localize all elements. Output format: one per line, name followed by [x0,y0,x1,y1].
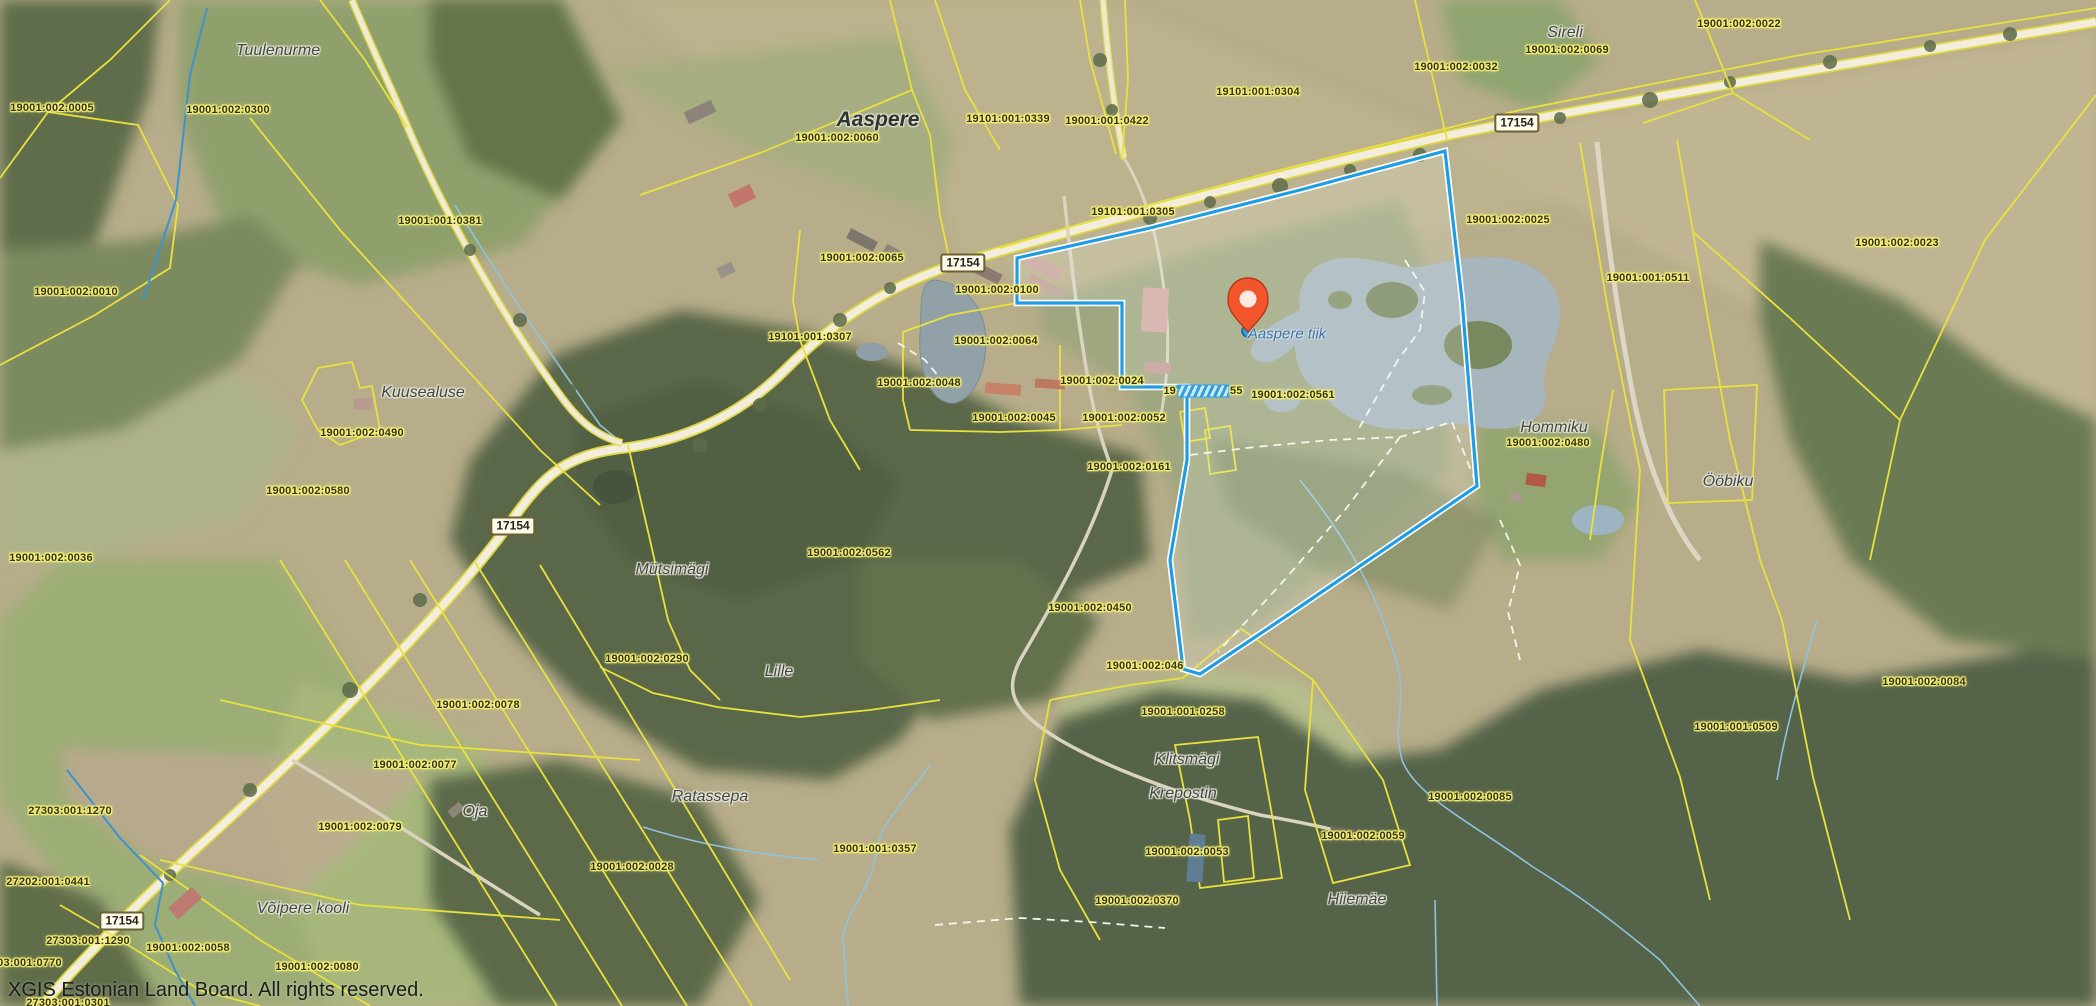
place-label: Ööbiku [1703,473,1754,491]
attribution-text: XGIS Estonian Land Board. All rights res… [8,979,424,1002]
parcel-label: 19001:002:0580 [266,485,350,497]
parcel-label: 19001:001:0509 [1694,721,1778,733]
place-label: Kuusealuse [381,384,465,402]
parcel-label: 19001:002:0045 [972,412,1056,424]
parcel-label: 19001:002:0480 [1506,437,1590,449]
parcel-label: 19001:002:0005 [10,102,94,114]
parcel-label: 19001:002:0561 [1251,389,1335,401]
parcel-label: 19001:002:0065 [820,252,904,264]
place-label: Lille [765,663,793,681]
parcel-label: 19001:002:0024 [1060,375,1144,387]
parcel-label: 19001:002:0052 [1082,412,1166,424]
parcel-label: 19001:002:0084 [1882,676,1966,688]
road-ref-badge: 17154 [99,912,144,931]
parcel-label: 19001:002:0370 [1095,895,1179,907]
place-label: Krepostin [1149,785,1217,803]
parcel-label: 19001:001:0422 [1065,115,1149,127]
place-label: Võipere kooli [257,900,350,918]
parcel-label: 27202:001:0441 [6,876,90,888]
map-canvas[interactable]: Tuulenurme19001:002:000519001:002:030019… [0,0,2096,1006]
parcel-label: 19101:001:0339 [966,113,1050,125]
place-label: Hiiemäe [1328,891,1387,909]
parcel-label: 19101:001:0304 [1216,86,1300,98]
place-label: Klitsmägi [1155,751,1220,769]
map-labels-layer: Tuulenurme19001:002:000519001:002:030019… [0,0,2096,1006]
parcel-label: 19001:002:0058 [146,942,230,954]
parcel-label: 19001:002:0079 [318,821,402,833]
place-label: Mütsimägi [636,561,709,579]
parcel-label: 19001:001:0357 [833,843,917,855]
parcel-label: 27303:001:0770 [0,957,62,969]
parcel-label: 19001:002:0161 [1087,461,1171,473]
parcel-label: 19001:002:0036 [9,552,93,564]
place-label: Oja [463,803,488,821]
parcel-label: 19001:002:0450 [1048,602,1132,614]
parcel-label: 27303:001:1290 [46,935,130,947]
parcel-label: 19001:002:0032 [1414,61,1498,73]
place-label: Hommiku [1520,419,1588,437]
parcel-label: 19001:001:0511 [1607,272,1690,284]
parcel-label: 19001:001:0381 [398,215,482,227]
parcel-label: 19001:001:0258 [1141,706,1225,718]
parcel-label: 19001:002:0078 [436,699,520,711]
parcel-label: 19001:002:0290 [605,653,689,665]
parcel-label: 19001:002:0025 [1466,214,1550,226]
parcel-label: 27303:001:1270 [28,805,112,817]
parcel-label: 19001:002:0053 [1145,846,1229,858]
parcel-label: 19001:002:0010 [34,286,118,298]
parcel-label: 19001:002:0100 [955,284,1039,296]
parcel-label: 19001:002:0022 [1697,18,1781,30]
road-ref-badge: 17154 [940,254,985,273]
parcel-label: 19001:002:0490 [320,427,404,439]
parcel-label: 19001:002:0048 [877,377,961,389]
parcel-label: 19101:001:0307 [768,331,852,343]
selection-hatch [1177,385,1229,398]
road-ref-badge: 17154 [490,517,535,536]
parcel-label: 19001:002:0085 [1428,791,1512,803]
parcel-label: 19001:002:0060 [795,132,879,144]
parcel-label: 19001:002:0300 [186,104,270,116]
parcel-label: 19001:002:0059 [1321,830,1405,842]
parcel-label: 19001:002:0080 [275,961,359,973]
parcel-label: 19101:001:0305 [1091,206,1175,218]
place-major-label: Aaspere [837,108,920,132]
parcel-label: 19001:002:0069 [1525,44,1609,56]
parcel-label: 19001:002:0562 [807,547,891,559]
parcel-label: 19001:002:0023 [1855,237,1939,249]
parcel-label-obscured: 1955 [1163,385,1242,398]
parcel-label: 19001:002:0064 [954,335,1038,347]
place-label: Tuulenurme [236,42,320,60]
parcel-label: 19001:002:0028 [590,861,674,873]
place-label: Ratassepa [672,788,749,806]
road-ref-badge: 17154 [1494,114,1539,133]
location-marker-pin[interactable] [1226,276,1270,334]
parcel-label: 19001:002:046 [1106,660,1183,672]
parcel-label: 19001:002:0077 [373,759,457,771]
place-label: Sireli [1547,24,1583,42]
